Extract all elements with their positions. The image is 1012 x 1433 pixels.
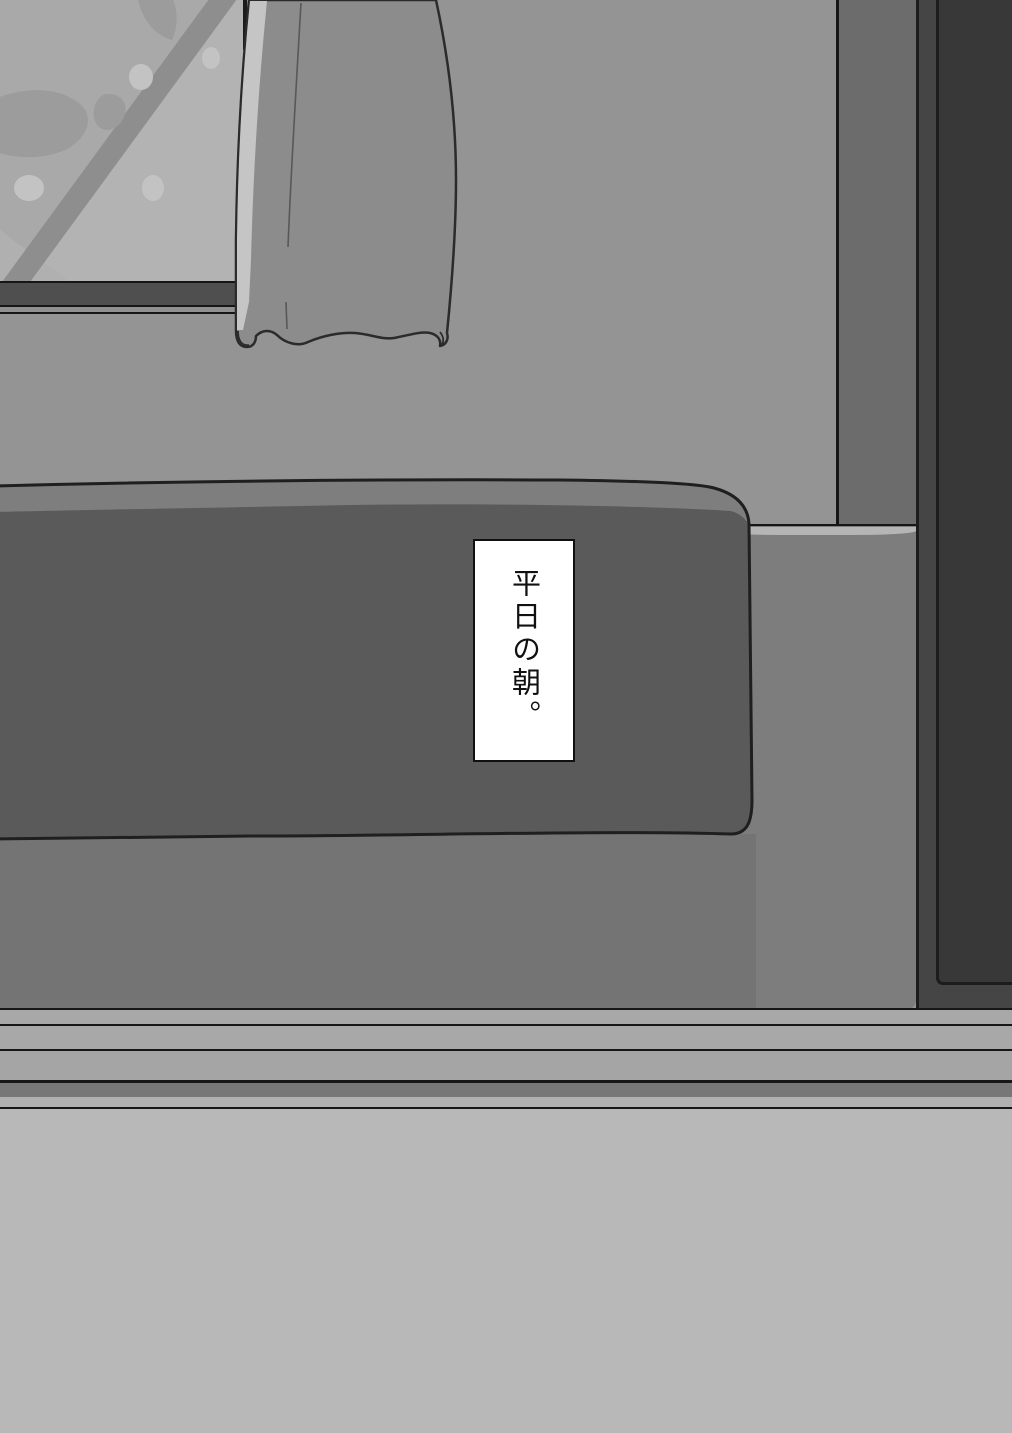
door-panel <box>936 0 1012 985</box>
baseboard-band-3 <box>0 1049 1012 1080</box>
window-sill-face <box>0 281 237 307</box>
wall-below-bed <box>0 834 756 1008</box>
window <box>0 0 248 282</box>
manga-panel: 平日の朝。 <box>0 0 1012 1433</box>
glass-light-dot-3 <box>142 175 164 201</box>
window-sill-rail <box>0 307 237 314</box>
curtain-fold-line-2 <box>286 302 287 329</box>
floor <box>0 1107 1012 1433</box>
bed <box>0 470 760 848</box>
glass-light-dot-1 <box>129 64 153 90</box>
baseboard <box>0 1008 1012 1107</box>
caption-box: 平日の朝。 <box>473 539 575 762</box>
baseboard-shadow-band <box>0 1080 1012 1097</box>
glass-light-dot-4 <box>14 175 44 201</box>
bed-front <box>0 480 752 839</box>
baseboard-band-2 <box>0 1024 1012 1049</box>
curtain <box>225 0 460 360</box>
caption-text: 平日の朝。 <box>510 568 539 733</box>
baseboard-band-1 <box>0 1008 1012 1024</box>
glass-light-dot-2 <box>202 47 220 69</box>
curtain-body <box>236 0 456 347</box>
wall-recess-band <box>836 0 916 525</box>
baseboard-highlight-band <box>0 1097 1012 1107</box>
window-sill <box>0 281 237 314</box>
